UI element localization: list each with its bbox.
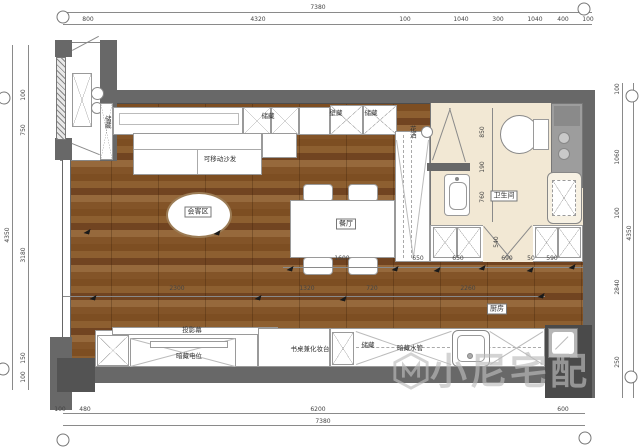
dim-label: 1040 <box>527 17 542 23</box>
dim-label: 800 <box>82 17 93 23</box>
dim-label: 1600 <box>334 256 349 262</box>
dim-label: 150 <box>21 352 27 363</box>
dim-label: 300 <box>492 17 503 23</box>
dim-label: 3180 <box>21 247 27 262</box>
dim-label: 760 <box>480 191 486 202</box>
dim-label: 750 <box>21 124 27 135</box>
dim-label: 400 <box>557 17 568 23</box>
dim-label: 100 <box>54 407 65 413</box>
dim-label: 850 <box>480 126 486 137</box>
dim-label: 100 <box>615 207 621 218</box>
dim-label: 2840 <box>615 279 621 294</box>
dim-label: 1040 <box>453 17 468 23</box>
dim-label: 2260 <box>460 286 475 292</box>
dim-label: 1320 <box>299 286 314 292</box>
dim-label: 4320 <box>250 17 265 23</box>
dim-label: 690 <box>501 256 512 262</box>
dim-label: 480 <box>79 407 90 413</box>
dim-label: 190 <box>480 161 486 172</box>
dim-label: 540 <box>494 236 500 247</box>
dim-label: 4350 <box>5 227 11 242</box>
dim-label: 720 <box>366 286 377 292</box>
dim-label: 250 <box>615 356 621 367</box>
dim-label: 100 <box>582 17 593 23</box>
dim-label: 6200 <box>310 407 325 413</box>
dim-label: 7380 <box>315 419 330 425</box>
dim-label: 650 <box>452 256 463 262</box>
dim-label: 100 <box>21 371 27 382</box>
floor-plan-canvas: 会客区 餐厅 卫生间 厨房 储藏储藏壁藏储藏可移动沙发投影幕暗藏电位书桌兼化妆台… <box>0 0 640 447</box>
dim-layer: 7380800432010010403001040400100100480620… <box>0 0 640 447</box>
dim-label: 4350 <box>627 225 633 240</box>
dim-label: 7380 <box>310 5 325 11</box>
dim-label: 1060 <box>615 149 621 164</box>
dim-label: 100 <box>399 17 410 23</box>
dim-label: 2300 <box>169 286 184 292</box>
dim-label: 600 <box>557 407 568 413</box>
dim-label: 100 <box>615 83 621 94</box>
dim-label: 50 <box>527 256 535 262</box>
dim-label: 100 <box>21 89 27 100</box>
dim-label: 650 <box>412 256 423 262</box>
dim-label: 590 <box>546 256 557 262</box>
